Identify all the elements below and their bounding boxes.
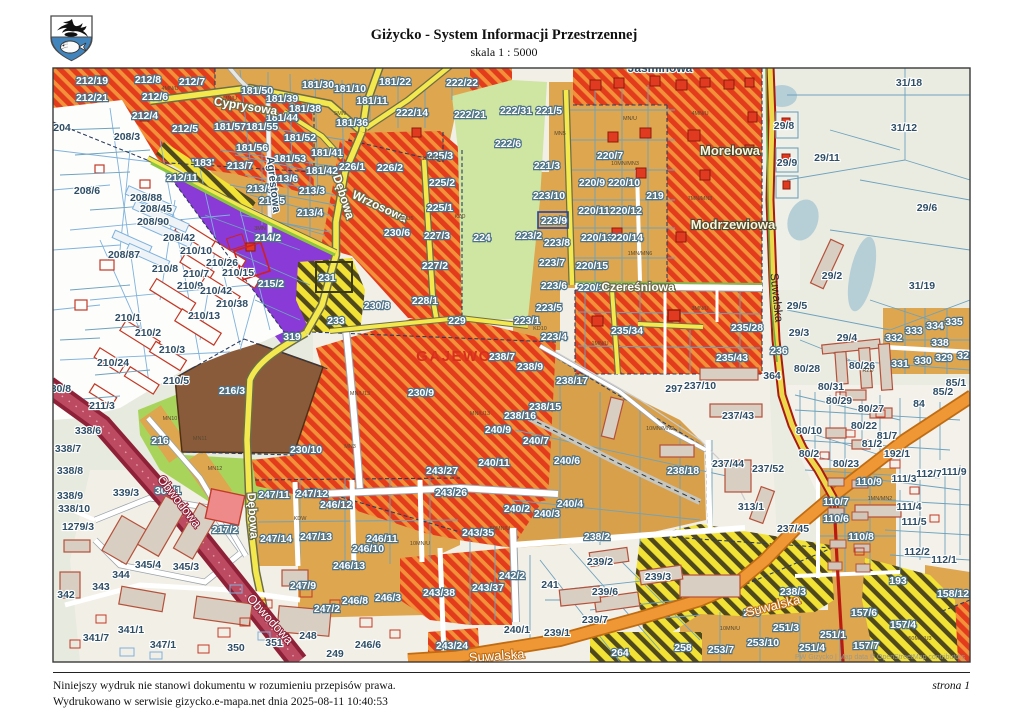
svg-text:246/10: 246/10 [352,543,384,555]
svg-text:247/14: 247/14 [260,533,292,545]
svg-text:240/9: 240/9 [485,424,511,436]
svg-text:330/8: 330/8 [45,383,71,395]
svg-text:239/1: 239/1 [544,627,570,639]
svg-text:Czereśniowa: Czereśniowa [601,280,675,294]
svg-text:29/6: 29/6 [917,202,938,214]
svg-text:350: 350 [227,642,245,654]
svg-text:181/52: 181/52 [284,132,316,144]
svg-text:MN10: MN10 [163,416,178,422]
svg-text:212/7: 212/7 [179,76,205,88]
svg-text:338/6: 338/6 [75,425,101,437]
svg-text:7MN/MN3: 7MN/MN3 [688,196,713,202]
svg-text:239/3: 239/3 [645,571,671,583]
svg-text:110/7: 110/7 [823,496,849,508]
svg-text:181/22: 181/22 [379,76,411,88]
svg-text:29/8: 29/8 [774,120,795,132]
svg-text:208/3: 208/3 [114,131,140,143]
svg-text:10MN/MN3: 10MN/MN3 [611,161,639,167]
svg-text:338/9: 338/9 [57,490,83,502]
svg-text:MN/U5: MN/U5 [396,216,413,222]
svg-text:210/3: 210/3 [159,344,185,356]
svg-text:248: 248 [299,630,317,642]
svg-text:210/10: 210/10 [180,245,212,257]
svg-text:157/4: 157/4 [890,619,916,631]
svg-text:236: 236 [770,345,788,357]
svg-text:KD10: KD10 [533,326,547,332]
svg-text:84: 84 [913,398,925,410]
svg-text:80/10: 80/10 [796,425,822,437]
svg-text:230/6: 230/6 [384,227,410,239]
svg-text:210/1: 210/1 [115,312,141,324]
svg-text:220/15: 220/15 [576,260,608,272]
svg-text:50MN/U: 50MN/U [490,526,510,532]
svg-text:85/2: 85/2 [933,386,954,398]
svg-text:217/2: 217/2 [212,524,238,536]
svg-text:213/7: 213/7 [227,160,253,172]
svg-text:29/4: 29/4 [837,332,858,344]
svg-text:1MN/U: 1MN/U [591,341,608,347]
svg-text:247/11: 247/11 [258,489,290,501]
svg-text:213/4: 213/4 [297,207,323,219]
svg-text:235/43: 235/43 [716,352,748,364]
svg-text:Modrzewiowa: Modrzewiowa [691,217,776,232]
svg-text:192/1: 192/1 [884,448,910,460]
svg-text:225/2: 225/2 [429,177,455,189]
svg-text:MN3: MN3 [344,444,356,450]
svg-text:210/42: 210/42 [200,285,232,297]
svg-text:RZD: RZD [862,368,873,374]
svg-text:212/4: 212/4 [132,110,158,122]
svg-text:181/53: 181/53 [274,153,306,165]
svg-text:210/5: 210/5 [163,375,189,387]
svg-text:MN5: MN5 [554,131,566,137]
svg-text:212/19: 212/19 [76,75,108,87]
svg-text:10MN/U: 10MN/U [410,541,430,547]
svg-text:5MN: 5MN [334,111,346,117]
svg-text:29/3: 29/3 [789,327,810,339]
svg-text:208/90: 208/90 [137,216,169,228]
svg-text:231: 231 [318,272,336,284]
svg-text:229: 229 [448,315,466,327]
svg-text:193: 193 [889,575,907,587]
svg-text:181/36: 181/36 [336,117,368,129]
svg-text:243/38: 243/38 [423,587,455,599]
svg-text:3MN: 3MN [254,226,266,232]
svg-text:181/41: 181/41 [311,147,343,159]
svg-text:216: 216 [151,435,169,447]
svg-text:247/9: 247/9 [290,580,316,592]
svg-text:1MN/MN6: 1MN/MN6 [628,251,653,257]
svg-text:246/12: 246/12 [320,499,352,511]
svg-text:29/5: 29/5 [787,300,808,312]
svg-text:253/7: 253/7 [708,644,734,656]
svg-text:364: 364 [763,370,781,382]
svg-text:238/7: 238/7 [489,351,515,363]
svg-text:80/2: 80/2 [799,448,820,460]
svg-text:157/7: 157/7 [853,640,879,652]
svg-text:KDW: KDW [294,516,308,522]
svg-text:246/3: 246/3 [375,592,401,604]
svg-text:212/6: 212/6 [142,91,168,103]
svg-text:219: 219 [646,190,664,202]
svg-text:338: 338 [931,337,949,349]
svg-text:29/11: 29/11 [814,152,840,164]
svg-text:343: 343 [92,581,110,593]
svg-text:MN/U13: MN/U13 [470,411,490,417]
svg-text:222/6: 222/6 [495,138,521,150]
svg-text:29/9: 29/9 [777,157,798,169]
svg-text:10MN/U: 10MN/U [720,626,740,632]
svg-text:251/1: 251/1 [820,629,846,641]
svg-text:240/11: 240/11 [478,457,510,469]
svg-text:239/7: 239/7 [582,614,608,626]
svg-text:220/10: 220/10 [608,177,640,189]
svg-text:31/19: 31/19 [909,280,935,292]
svg-text:MN/U: MN/U [223,96,237,102]
svg-text:243/26: 243/26 [435,487,467,499]
svg-text:223/2: 223/2 [516,230,542,242]
svg-text:233: 233 [327,315,345,327]
svg-text:222/22: 222/22 [446,77,478,89]
svg-text:211/3: 211/3 [89,400,115,412]
svg-text:341/1: 341/1 [118,624,144,636]
svg-text:181/55: 181/55 [246,121,278,133]
svg-text:223/10: 223/10 [533,190,565,202]
svg-text:110/8: 110/8 [848,531,874,543]
svg-text:237/44: 237/44 [712,458,744,470]
svg-text:212/11: 212/11 [166,172,198,184]
svg-text:240/6: 240/6 [554,455,580,467]
svg-text:80/23: 80/23 [833,458,859,470]
svg-text:297: 297 [665,383,683,395]
svg-text:238/18: 238/18 [667,465,699,477]
svg-text:158/12: 158/12 [937,588,969,600]
svg-text:157/6: 157/6 [851,607,877,619]
svg-text:345/4: 345/4 [135,559,161,571]
svg-text:227/3: 227/3 [424,230,450,242]
svg-text:227/2: 227/2 [422,260,448,272]
svg-text:81/2: 81/2 [862,438,883,450]
svg-text:243/24: 243/24 [436,640,468,652]
svg-text:KZD: KZD [455,214,466,220]
svg-text:246/8: 246/8 [342,595,368,607]
svg-text:213/3: 213/3 [299,185,325,197]
svg-text:10MN/MN2: 10MN/MN2 [646,426,674,432]
svg-text:208/45: 208/45 [140,203,172,215]
svg-text:342: 342 [57,589,75,601]
svg-text:220/12: 220/12 [610,205,642,217]
svg-text:228/1: 228/1 [412,295,438,307]
svg-text:223/5: 223/5 [536,302,562,314]
svg-text:319: 319 [283,331,301,343]
svg-text:212/5: 212/5 [172,123,198,135]
svg-text:331: 331 [891,358,909,370]
svg-text:221/5: 221/5 [536,105,562,117]
svg-text:332: 332 [885,332,903,344]
svg-text:237/52: 237/52 [752,463,784,475]
svg-text:208/42: 208/42 [163,232,195,244]
svg-text:235/28: 235/28 [731,322,763,334]
svg-text:212/8: 212/8 [135,74,161,86]
svg-text:220/9: 220/9 [579,177,605,189]
svg-text:246/6: 246/6 [355,639,381,651]
svg-text:208/87: 208/87 [108,249,140,261]
svg-text:235/34: 235/34 [611,325,643,337]
svg-text:328: 328 [957,350,975,362]
svg-text:338/10: 338/10 [58,503,90,515]
svg-text:240/2: 240/2 [504,503,530,515]
svg-text:110/6: 110/6 [823,513,849,525]
svg-text:210/13: 210/13 [188,310,220,322]
svg-text:237/43: 237/43 [722,410,754,422]
svg-text:3MN/U: 3MN/U [691,306,708,312]
svg-text:220/11: 220/11 [578,205,610,217]
svg-text:344: 344 [112,569,130,581]
svg-text:341/7: 341/7 [83,632,109,644]
svg-text:224: 224 [473,232,491,244]
svg-text:111/5: 111/5 [901,516,926,528]
svg-text:338/8: 338/8 [57,465,83,477]
svg-text:111/9: 111/9 [941,466,966,478]
svg-text:249: 249 [326,648,344,660]
svg-text:247/2: 247/2 [314,603,340,615]
svg-text:246/13: 246/13 [333,560,365,572]
svg-text:80/29: 80/29 [826,395,852,407]
svg-text:251/3: 251/3 [773,622,799,634]
svg-text:181/56: 181/56 [236,142,268,154]
svg-text:181/57: 181/57 [214,121,246,133]
svg-text:226/2: 226/2 [377,162,403,174]
svg-text:210/8: 210/8 [152,263,178,275]
svg-text:220/13: 220/13 [581,232,613,244]
svg-text:MN/U: MN/U [623,116,637,122]
svg-text:237/10: 237/10 [684,380,716,392]
svg-text:181/10: 181/10 [334,83,366,95]
svg-text:225/1: 225/1 [427,202,453,214]
svg-text:239/2: 239/2 [587,556,613,568]
svg-text:230/10: 230/10 [290,444,322,456]
svg-text:210/38: 210/38 [216,298,248,310]
svg-text:347/1: 347/1 [150,639,176,651]
svg-text:243/37: 243/37 [472,582,504,594]
svg-text:221/3: 221/3 [534,160,560,172]
svg-text:210/2: 210/2 [135,327,161,339]
svg-text:237/45: 237/45 [777,523,809,535]
svg-text:223/7: 223/7 [539,257,565,269]
svg-text:PW Giżycko | Map data © OpenSt: PW Giżycko | Map data © OpenStreetMap co… [795,653,965,661]
svg-text:112/2: 112/2 [904,546,930,558]
svg-text:238/16: 238/16 [504,410,536,422]
svg-text:Morelowa: Morelowa [700,143,761,158]
svg-text:112/7: 112/7 [916,468,942,480]
svg-text:210/15: 210/15 [222,267,254,279]
svg-text:335: 335 [945,316,963,328]
svg-text:220/14: 220/14 [611,232,643,244]
svg-text:242/2: 242/2 [499,570,525,582]
svg-text:181/11: 181/11 [356,95,388,107]
svg-text:29/2: 29/2 [822,270,843,282]
svg-text:313/1: 313/1 [738,501,764,513]
svg-text:80/22: 80/22 [851,420,877,432]
svg-text:241: 241 [541,579,559,591]
svg-text:338/7: 338/7 [55,443,81,455]
svg-text:238/9: 238/9 [517,361,543,373]
svg-text:222/31: 222/31 [500,105,532,117]
svg-text:80/31: 80/31 [818,381,844,393]
svg-text:239/6: 239/6 [592,586,618,598]
svg-text:333: 333 [905,325,923,337]
svg-text:238/17: 238/17 [556,375,588,387]
svg-text:80/28: 80/28 [794,363,820,375]
svg-text:210/7: 210/7 [183,268,209,280]
svg-text:111/3: 111/3 [891,473,916,485]
svg-text:230/9: 230/9 [408,387,434,399]
svg-text:111/4: 111/4 [896,501,921,513]
svg-text:4MN/U: 4MN/U [691,111,708,117]
svg-text:MN12: MN12 [208,466,223,472]
svg-text:216/3: 216/3 [219,385,245,397]
svg-text:240/3: 240/3 [534,508,560,520]
svg-text:208/6: 208/6 [74,185,100,197]
svg-text:210/24: 210/24 [97,357,129,369]
svg-text:31/18: 31/18 [896,77,922,89]
svg-text:330: 330 [914,355,932,367]
svg-text:223/8: 223/8 [544,237,570,249]
svg-text:238/2: 238/2 [584,531,610,543]
svg-text:251/4: 251/4 [799,642,825,654]
svg-text:223/9: 223/9 [541,215,567,227]
svg-text:80/27: 80/27 [858,403,884,415]
svg-text:223/6: 223/6 [541,280,567,292]
svg-text:1279/3: 1279/3 [62,521,94,533]
svg-text:339/3: 339/3 [113,487,139,499]
svg-text:329: 329 [935,352,953,364]
svg-text:50MN/U3: 50MN/U3 [908,636,931,642]
svg-text:'183': '183' [192,157,215,169]
svg-text:240/7: 240/7 [523,435,549,447]
svg-text:230/8: 230/8 [364,300,390,312]
svg-text:181/30: 181/30 [302,79,334,91]
svg-text:253/10: 253/10 [747,637,779,649]
svg-text:1MN/MN2: 1MN/MN2 [868,496,893,502]
svg-text:215/2: 215/2 [258,278,284,290]
svg-text:214/2: 214/2 [255,232,281,244]
svg-text:110/9: 110/9 [856,476,882,488]
svg-text:222/21: 222/21 [454,109,486,121]
svg-text:1MN/U4: 1MN/U4 [422,156,442,162]
svg-text:226/1: 226/1 [339,161,365,173]
svg-text:334: 334 [926,320,944,332]
svg-text:345/3: 345/3 [173,561,199,573]
svg-text:4MN/U: 4MN/U [161,86,178,92]
svg-text:MN/U13: MN/U13 [350,391,370,397]
svg-text:258: 258 [674,642,692,654]
svg-text:31/12: 31/12 [891,122,917,134]
svg-text:223/4: 223/4 [541,331,567,343]
svg-text:240/4: 240/4 [557,498,583,510]
svg-text:243/27: 243/27 [426,465,458,477]
svg-text:MN11: MN11 [193,436,207,442]
svg-text:204: 204 [53,122,71,134]
svg-text:240/1: 240/1 [504,624,530,636]
svg-text:247/13: 247/13 [300,531,332,543]
svg-text:GAJEWO: GAJEWO [416,348,492,365]
svg-text:222/14: 222/14 [396,107,428,119]
svg-text:212/21: 212/21 [76,92,108,104]
svg-text:264: 264 [611,647,629,659]
svg-text:112/1: 112/1 [931,554,957,566]
